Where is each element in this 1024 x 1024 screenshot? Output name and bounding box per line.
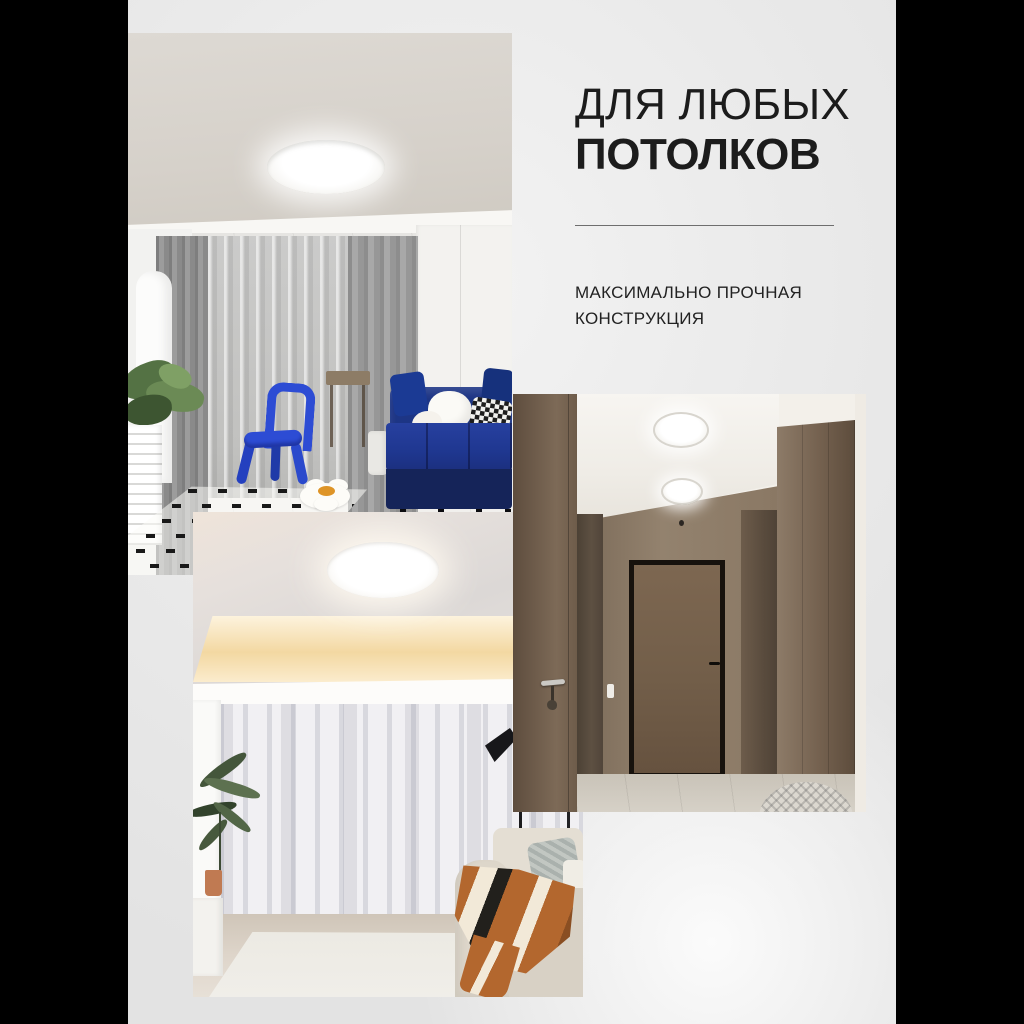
text-block: ДЛЯ ЛЮБЫХ ПОТОЛКОВ МАКСИМАЛЬНО ПРОЧНАЯ К… (575, 80, 885, 331)
side-table-leg (362, 385, 365, 447)
product-infographic-card: ДЛЯ ЛЮБЫХ ПОТОЛКОВ МАКСИМАЛЬНО ПРОЧНАЯ К… (128, 0, 896, 1024)
wood-wardrobe-column (777, 420, 855, 812)
shadowed-corner (741, 510, 779, 780)
blue-kids-chair (244, 383, 310, 485)
keychain (547, 700, 557, 710)
blue-sofa-seat (386, 423, 512, 471)
blue-sofa-front (386, 469, 512, 509)
white-wall-strip (855, 394, 866, 812)
flower-egg-cushion (300, 479, 354, 511)
blue-pillow (389, 371, 429, 417)
round-ceiling-light-far (661, 478, 703, 505)
round-ceiling-light (327, 542, 439, 598)
round-ceiling-light (653, 412, 709, 448)
photo-living-room (128, 33, 512, 575)
photo-wood-hallway (513, 394, 866, 812)
cushion-yolk-center (318, 486, 335, 496)
letterbox-right-bar (896, 0, 1024, 1024)
headline-line2: ПОТОЛКОВ (575, 130, 820, 179)
chair-seat (244, 429, 303, 448)
subheadline-line1: МАКСИМАЛЬНО ПРОЧНАЯ (575, 283, 802, 302)
terracotta-pot (205, 870, 222, 896)
plant-stem (219, 812, 221, 874)
ceiling-sensor-dot (679, 520, 684, 526)
white-bin (368, 431, 388, 475)
divider-line (575, 225, 834, 226)
screenshot-root: { "card": { "type": "marketplace-product… (0, 0, 1024, 1024)
light-switch (607, 684, 614, 698)
cushion-petal (314, 497, 338, 511)
side-table-leg (330, 385, 333, 447)
left-wood-door (513, 394, 577, 812)
door-handle (709, 662, 720, 665)
subheadline-line2: КОНСТРУКЦИЯ (575, 309, 704, 328)
side-table (326, 371, 370, 385)
letterbox-left-bar (0, 0, 128, 1024)
headline: ДЛЯ ЛЮБЫХ ПОТОЛКОВ (575, 80, 885, 180)
white-planter (193, 898, 223, 976)
subheadline: МАКСИМАЛЬНО ПРОЧНАЯ КОНСТРУКЦИЯ (575, 280, 885, 331)
headline-line1: ДЛЯ ЛЮБЫХ (575, 80, 850, 129)
living-room-ceiling (128, 33, 512, 229)
round-ceiling-light (267, 140, 385, 194)
mirror-strip (577, 514, 603, 780)
black-framed-entry-door (629, 560, 725, 778)
